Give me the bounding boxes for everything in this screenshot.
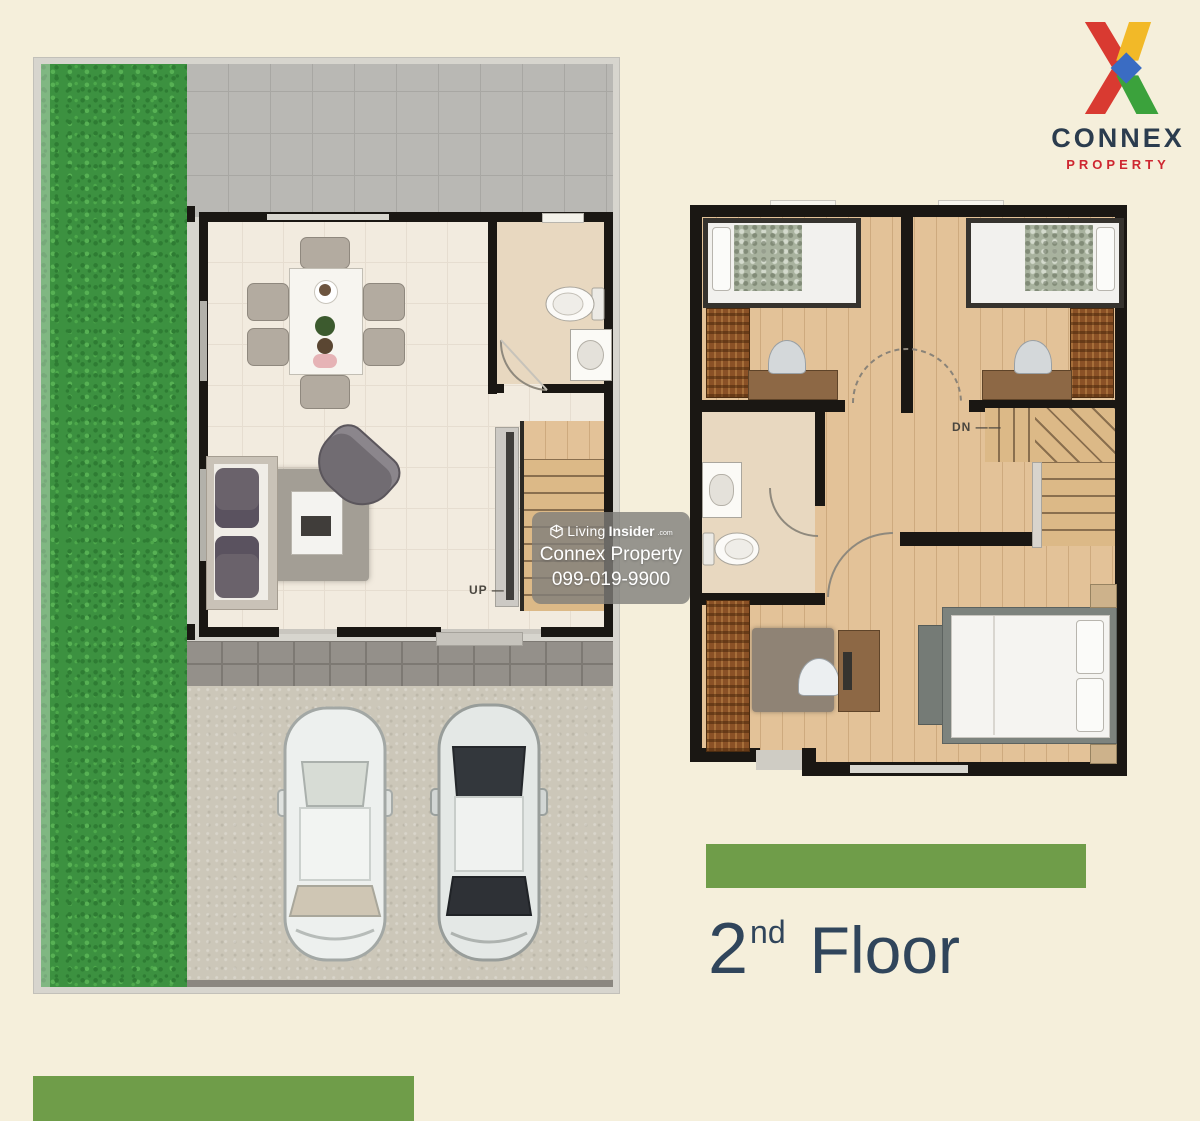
brand-logo: CONNEX PROPERTY	[1045, 22, 1191, 172]
site-prefix: Living	[567, 523, 605, 539]
dining-chair	[247, 328, 289, 366]
stair-landing	[524, 421, 604, 461]
site-bold: Insider	[609, 523, 655, 539]
sink-basin	[577, 340, 604, 370]
floor-number: 2	[708, 909, 748, 989]
wall-bottom-b	[337, 627, 441, 637]
fence-post	[187, 624, 195, 640]
sofa-cushions	[215, 468, 259, 528]
green-bar-bottom	[33, 1076, 414, 1121]
dining-chair	[300, 237, 350, 269]
stairs-up-label: UP —	[469, 583, 505, 597]
site-suffix: .com	[658, 530, 673, 537]
driveway-edge	[187, 980, 613, 987]
coffee-table-tray	[301, 516, 331, 536]
brand-name: CONNEX	[1045, 123, 1191, 154]
watermark: LivingInsider.com Connex Property 099-01…	[532, 512, 690, 604]
floor-word: Floor	[810, 913, 960, 987]
second-floor-plan: DN ——	[690, 200, 1127, 790]
watermark-company: Connex Property	[532, 544, 690, 566]
garden-grass	[41, 64, 187, 987]
watermark-phone: 099-019-9900	[532, 569, 690, 591]
white-car	[276, 704, 394, 964]
brand-tagline: PROPERTY	[1045, 157, 1191, 172]
door-swing-arc	[489, 338, 559, 403]
door-arcs	[690, 200, 1127, 790]
bathroom1-window	[542, 213, 584, 223]
page: UP —	[0, 0, 1200, 1121]
fence-post	[187, 206, 195, 222]
grass-edge	[41, 64, 50, 987]
floor-title: 2ndFloor	[708, 908, 1128, 990]
wall-bottom-a	[199, 627, 279, 637]
dining-chair	[363, 328, 405, 366]
cube-icon	[549, 524, 564, 539]
dining-chair	[363, 283, 405, 321]
sliding-door-1	[279, 629, 337, 634]
watermark-site: LivingInsider.com	[532, 523, 690, 539]
toilet	[544, 284, 606, 324]
sofa-cushions	[215, 536, 259, 598]
porch-pavers	[187, 641, 613, 686]
table-plant	[315, 316, 335, 336]
wall-bottom-c	[541, 627, 613, 637]
table-bowl	[317, 338, 333, 354]
patio-terrace	[187, 64, 613, 217]
dining-chair	[300, 375, 350, 409]
dessert-plate	[313, 354, 337, 368]
food-dish	[319, 284, 331, 296]
green-bar-top	[706, 844, 1086, 888]
floor-ordinal: nd	[750, 914, 786, 950]
up-text: UP	[469, 583, 487, 597]
dining-chair	[247, 283, 289, 321]
window-top	[267, 214, 389, 220]
stair-stringer	[520, 421, 524, 611]
up-leader: —	[487, 583, 504, 597]
brand-x-icon	[1066, 22, 1170, 114]
window-left-1	[200, 301, 207, 381]
driveway	[187, 686, 613, 987]
silver-car	[429, 701, 549, 964]
tv-panel	[506, 432, 514, 600]
door-step	[436, 632, 523, 646]
